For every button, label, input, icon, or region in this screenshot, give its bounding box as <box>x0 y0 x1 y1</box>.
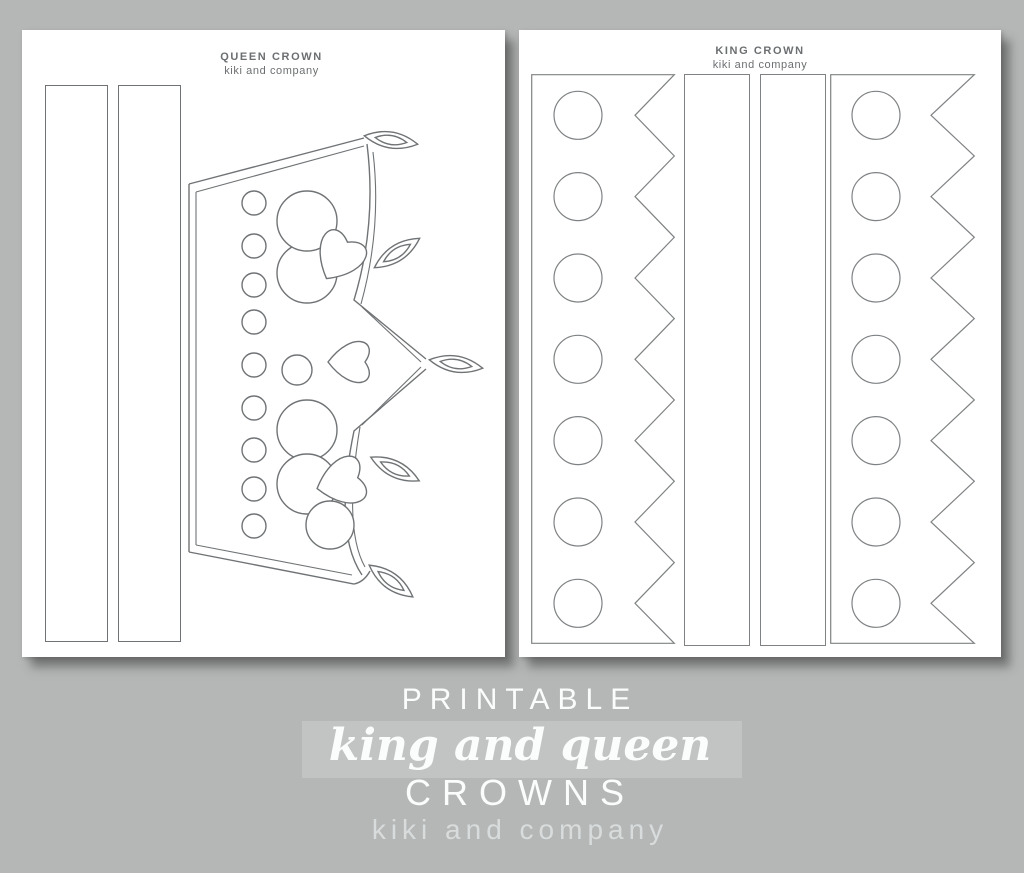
jewel-circles <box>852 91 900 627</box>
page-title-block: QUEEN CROWN kiki and company <box>30 52 513 77</box>
page-title-block: KING CROWN kiki and company <box>519 46 1001 71</box>
page-title-text: QUEEN CROWN <box>30 52 513 63</box>
queen-crown-page: QUEEN CROWN kiki and company <box>22 30 505 657</box>
plume-lobe <box>306 501 354 549</box>
page-subtitle-text: kiki and company <box>519 60 1001 71</box>
heart-shape <box>328 342 369 383</box>
footer-line-crowns: CROWNS <box>8 775 1024 811</box>
queen-crown-template <box>183 112 503 632</box>
plume-lobe <box>277 400 337 460</box>
headband-strip <box>118 85 181 642</box>
footer-line-kiki-and-company: kiki and company <box>8 816 1024 844</box>
king-crown-band-with-circles <box>830 74 975 644</box>
leaf-tips <box>363 128 484 603</box>
poster-canvas: QUEEN CROWN kiki and company <box>0 0 1024 873</box>
footer-line-king-and-queen: king and queen <box>8 724 1024 768</box>
jewel-circles <box>554 91 602 627</box>
queen-crown-decorations <box>242 128 484 603</box>
headband-strip <box>45 85 108 642</box>
page-subtitle-text: kiki and company <box>30 66 513 77</box>
headband-strip <box>760 74 826 646</box>
page-title-text: KING CROWN <box>519 46 1001 57</box>
king-crown-page: KING CROWN kiki and company <box>519 30 1001 657</box>
king-crown-band-with-circles <box>531 74 675 644</box>
headband-strip <box>684 74 750 646</box>
footer-line-printable: PRINTABLE <box>8 685 1024 715</box>
zigzag-band-outline <box>532 75 675 644</box>
